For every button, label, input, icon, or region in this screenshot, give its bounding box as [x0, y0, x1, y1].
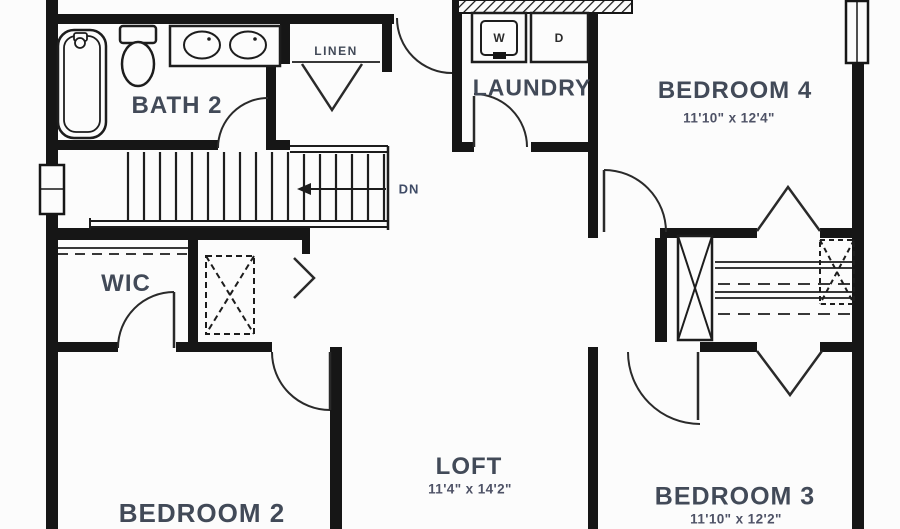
exterior-hatch-band [458, 0, 632, 13]
wic-shelf [58, 248, 188, 254]
dryer-label: D [555, 32, 564, 44]
laundry-label: LAUNDRY [473, 77, 592, 100]
hall-door-swing [397, 18, 452, 73]
linen-door [302, 64, 362, 110]
bedroom4-dims: 11'10" x 12'4" [683, 111, 775, 125]
washer-label: W [493, 32, 504, 44]
wic-label: WIC [101, 272, 151, 296]
toilet [120, 26, 156, 86]
bath2-door-swing [218, 98, 268, 148]
bedroom2-door-swing [272, 352, 330, 410]
bedroom4-closet-door [757, 187, 820, 231]
window-right [846, 1, 868, 63]
laundry-door-swing [474, 94, 527, 147]
loft-label: LOFT [436, 455, 503, 479]
linen-label: LINEN [314, 45, 358, 57]
stairs-dn-label: DN [399, 183, 420, 196]
bath-fixtures [58, 26, 280, 138]
bedroom-closet-interior [678, 236, 854, 340]
bedroom2-label: BEDROOM 2 [119, 500, 285, 526]
hall-closet-door [294, 258, 314, 298]
window-left [40, 165, 64, 214]
loft-dims: 11'4" x 14'2" [428, 482, 512, 496]
bedroom4-door-swing [604, 170, 666, 232]
floor-plan: BATH 2 LINEN LAUNDRY W D BEDROOM 4 11'10… [0, 0, 900, 529]
bedroom3-closet-door [757, 351, 822, 395]
bedroom3-door-swing [628, 352, 700, 424]
bathtub [58, 30, 106, 138]
bath2-label: BATH 2 [132, 94, 223, 118]
hall-chase-box [206, 256, 254, 334]
vanity-double-sink [170, 26, 280, 66]
wic-door-swing [118, 292, 174, 348]
staircase [90, 146, 388, 230]
bedroom4-label: BEDROOM 4 [658, 79, 812, 103]
laundry-appliances [472, 13, 588, 62]
stair-treads [128, 152, 384, 220]
bedroom3-dims: 11'10" x 12'2" [690, 512, 782, 526]
attic-access-box [820, 240, 854, 304]
bedroom3-label: BEDROOM 3 [655, 485, 815, 510]
stairs-down-arrow [297, 183, 386, 195]
